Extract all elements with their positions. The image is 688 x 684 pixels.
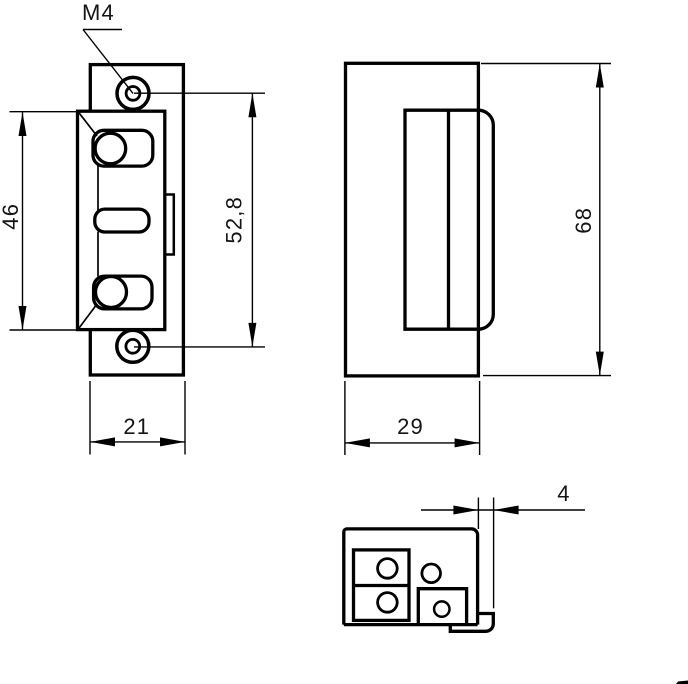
svg-text:29: 29 bbox=[397, 414, 424, 439]
svg-text:68: 68 bbox=[571, 207, 596, 234]
svg-text:46: 46 bbox=[0, 203, 23, 230]
svg-text:4: 4 bbox=[557, 481, 570, 506]
svg-text:52,8: 52,8 bbox=[221, 196, 246, 244]
svg-text:M4: M4 bbox=[82, 0, 115, 25]
svg-text:21: 21 bbox=[123, 414, 150, 439]
